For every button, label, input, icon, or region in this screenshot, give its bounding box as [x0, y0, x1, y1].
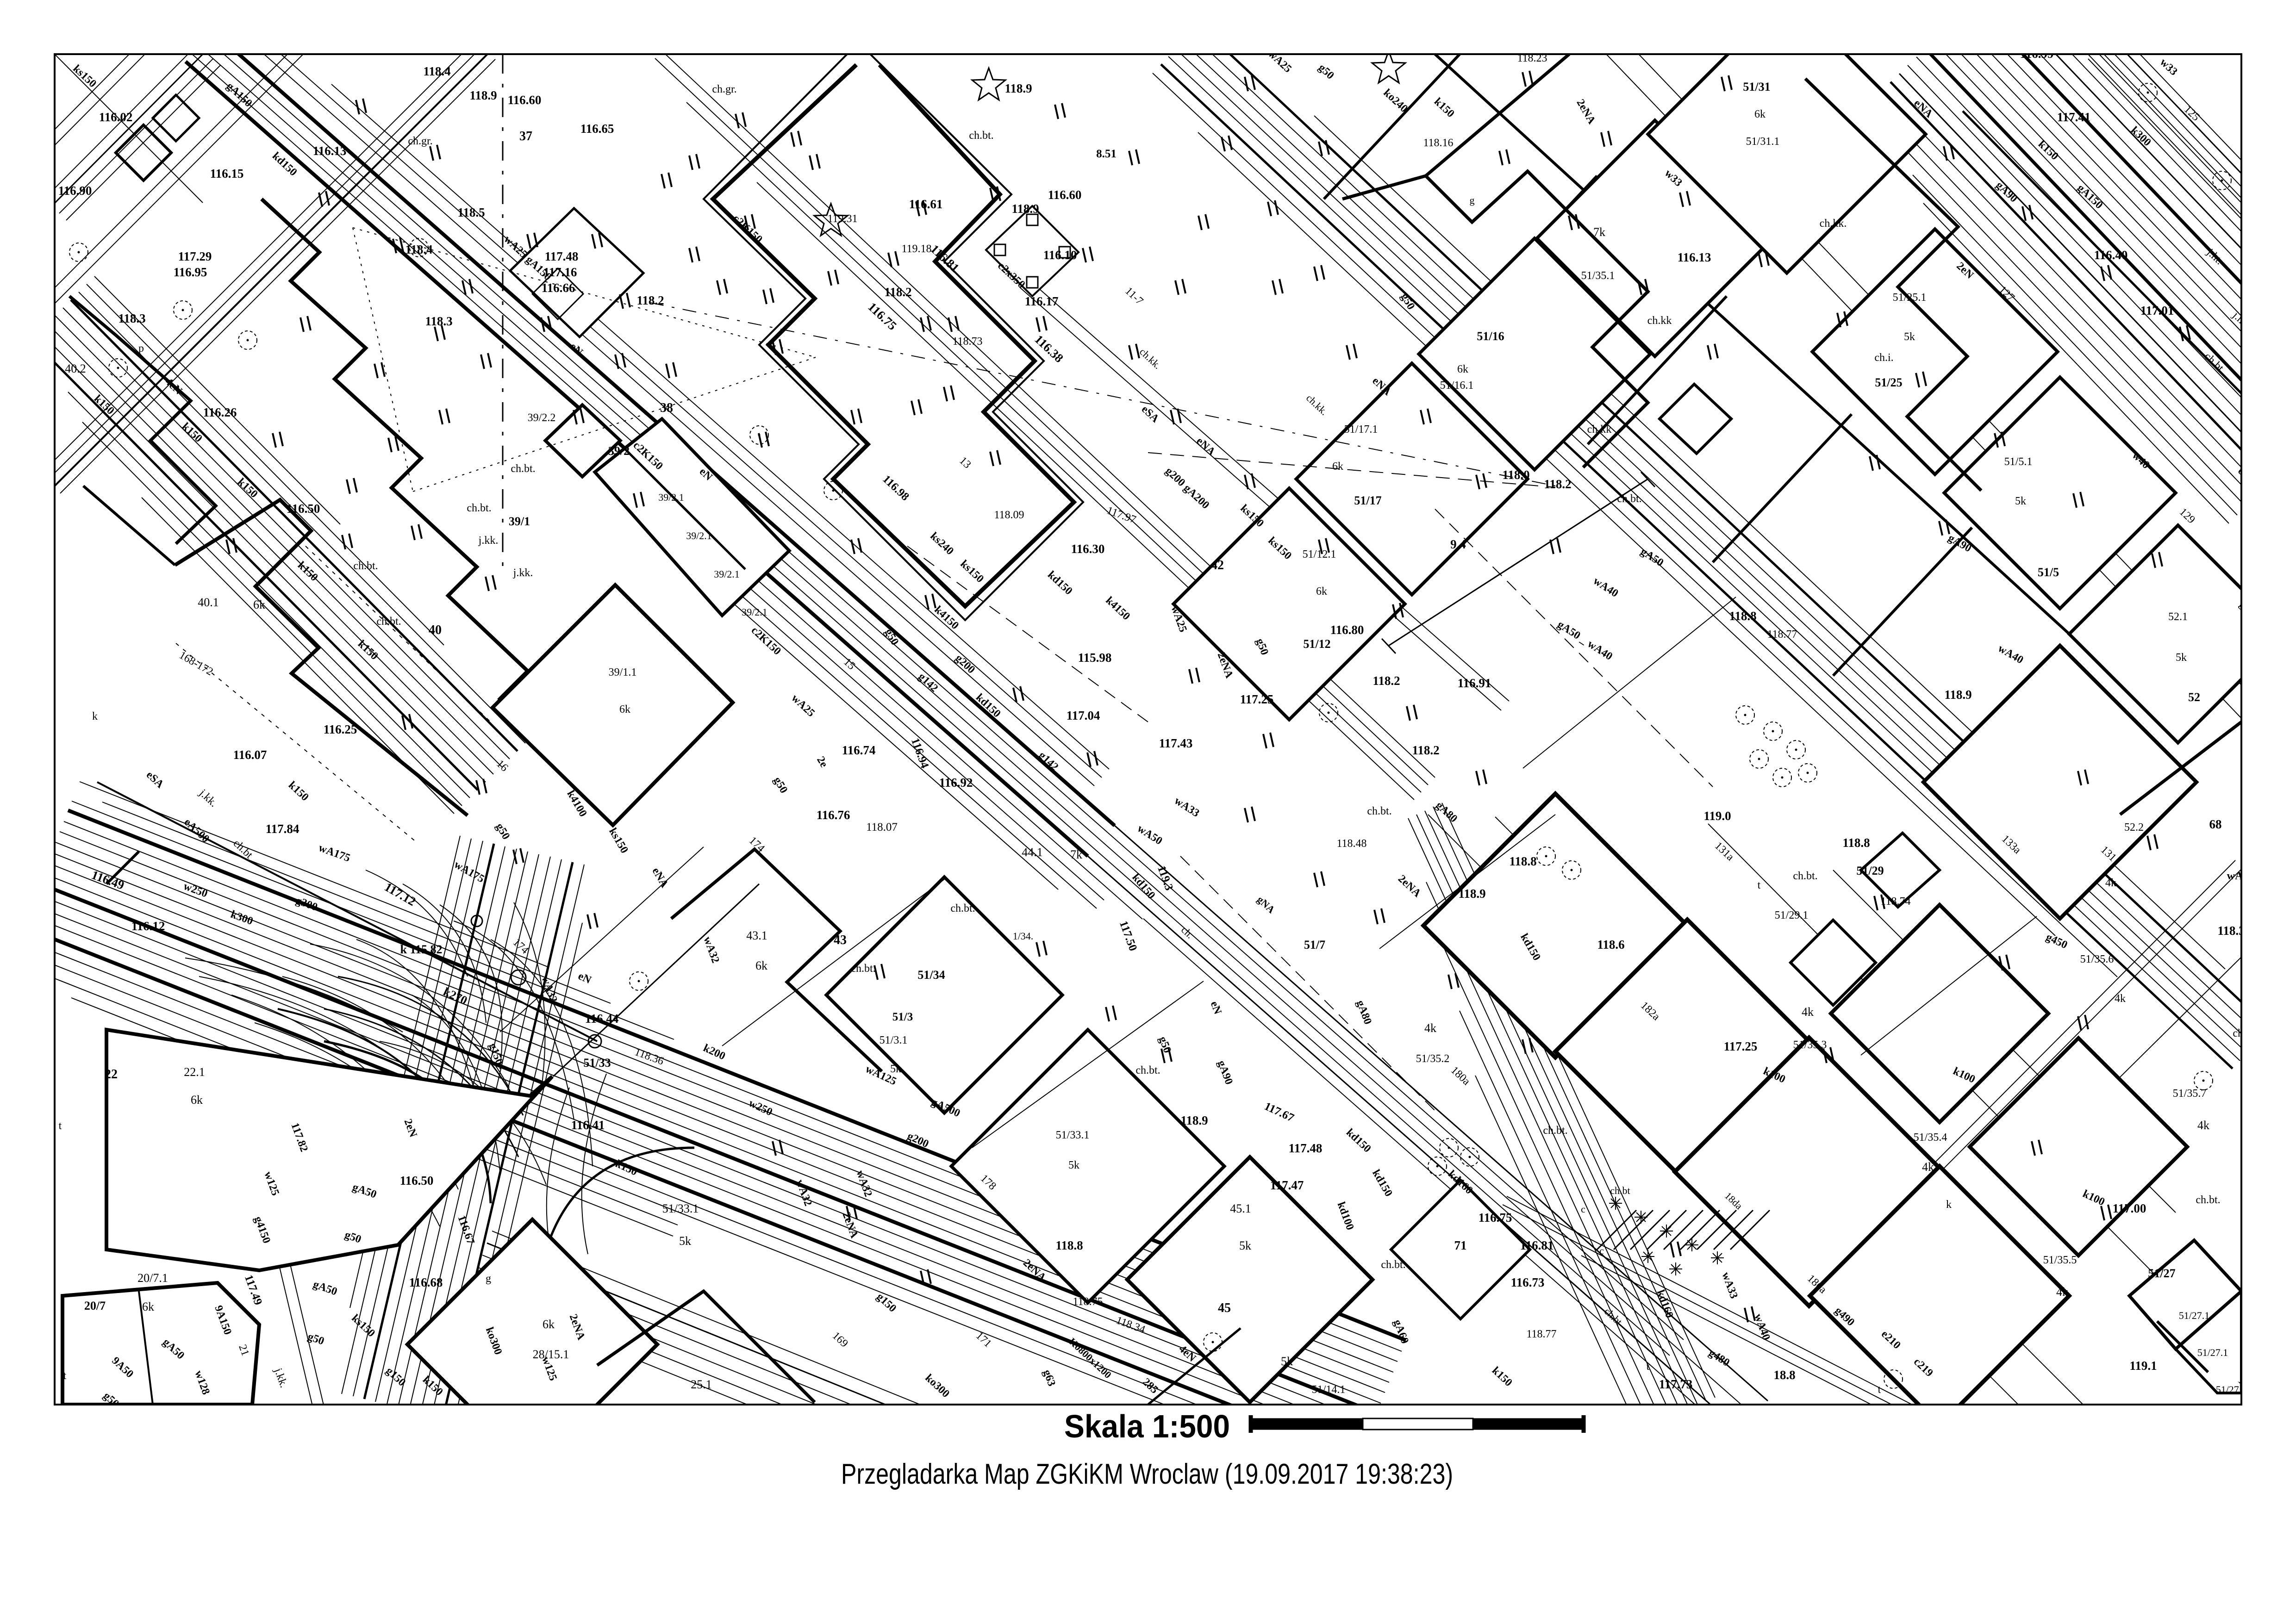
svg-text:9.4: 9.4: [1450, 537, 1466, 551]
svg-text:4k: 4k: [2056, 1285, 2068, 1299]
svg-text:39/1: 39/1: [509, 515, 530, 528]
svg-text:117.25: 117.25: [1724, 1039, 1758, 1053]
svg-text:116.02: 116.02: [99, 110, 133, 124]
svg-text:51/31: 51/31: [1743, 80, 1770, 93]
svg-text:116.44: 116.44: [585, 1012, 619, 1026]
svg-text:51/12: 51/12: [1303, 637, 1330, 651]
svg-text:5k: 5k: [2015, 495, 2026, 507]
svg-text:117.48: 117.48: [1289, 1141, 1323, 1155]
svg-text:6k: 6k: [1457, 363, 1468, 375]
svg-text:ch.bt.: ch.bt.: [969, 130, 993, 142]
svg-text:118.0: 118.0: [1502, 468, 1529, 482]
svg-text:45: 45: [1218, 1301, 1231, 1315]
svg-text:116.12: 116.12: [131, 919, 165, 933]
svg-text:116.13: 116.13: [313, 144, 347, 158]
svg-text:45.1: 45.1: [1230, 1202, 1251, 1215]
svg-text:118.4: 118.4: [405, 243, 432, 256]
svg-text:51/16: 51/16: [1477, 330, 1504, 343]
svg-text:117.01: 117.01: [2140, 304, 2174, 317]
svg-text:117.47: 117.47: [1270, 1178, 1304, 1192]
svg-text:116.75: 116.75: [1479, 1211, 1512, 1225]
svg-text:g: g: [486, 1273, 491, 1285]
svg-text:117.43: 117.43: [1159, 736, 1193, 750]
svg-text:51/3.1: 51/3.1: [880, 1034, 908, 1046]
svg-text:51/17.1: 51/17.1: [1344, 423, 1378, 435]
svg-text:117.29: 117.29: [178, 249, 212, 263]
svg-text:t: t: [1647, 1361, 1650, 1373]
svg-text:t: t: [63, 1370, 67, 1382]
svg-text:51/27.1: 51/27.1: [2179, 1310, 2210, 1321]
svg-text:39/2.1: 39/2.1: [658, 491, 684, 503]
svg-text:51/29.1: 51/29.1: [1775, 909, 1809, 921]
svg-text:39/2.1: 39/2.1: [686, 530, 712, 541]
svg-text:116.65: 116.65: [580, 122, 614, 136]
svg-text:116.50: 116.50: [400, 1174, 434, 1188]
svg-text:4k: 4k: [1424, 1021, 1436, 1035]
svg-text:51/16.1: 51/16.1: [1440, 379, 1474, 392]
svg-text:118.77: 118.77: [1526, 1328, 1556, 1340]
svg-text:116.07: 116.07: [233, 748, 267, 762]
svg-text:118.74: 118.74: [1880, 895, 1910, 908]
svg-text:ch.bt.: ch.bt.: [1381, 1259, 1405, 1271]
svg-text:ch.bt.: ch.bt.: [511, 463, 535, 475]
svg-text:51/17: 51/17: [1354, 494, 1381, 507]
svg-text:116.81: 116.81: [1520, 1238, 1554, 1252]
svg-text:51/35.2: 51/35.2: [1416, 1053, 1450, 1065]
svg-text:51/35.3: 51/35.3: [1793, 1039, 1827, 1051]
svg-text:118.2: 118.2: [1544, 477, 1571, 491]
svg-text:39/2.2: 39/2.2: [528, 412, 556, 424]
svg-text:44.1: 44.1: [1022, 846, 1043, 859]
svg-text:118.2: 118.2: [1373, 674, 1400, 688]
svg-text:ch.bt.: ch.bt.: [1617, 493, 1641, 505]
svg-text:5k: 5k: [1281, 1355, 1293, 1368]
svg-text:51/35.7: 51/35.7: [2173, 1088, 2207, 1100]
svg-text:5k: 5k: [1904, 331, 1915, 343]
svg-text:118.9: 118.9: [1011, 202, 1039, 216]
svg-text:c: c: [1581, 1203, 1585, 1215]
svg-text:5k: 5k: [679, 1234, 691, 1248]
svg-text:c: c: [1599, 1245, 1604, 1256]
svg-text:118.4: 118.4: [423, 64, 450, 78]
svg-text:118.48: 118.48: [1336, 838, 1366, 850]
svg-text:118.3: 118.3: [425, 314, 452, 328]
svg-text:ch.gr.: ch.gr.: [712, 83, 736, 95]
svg-text:116.80: 116.80: [1330, 623, 1364, 637]
svg-text:116.30: 116.30: [1071, 542, 1105, 556]
svg-text:51/5.1: 51/5.1: [2004, 456, 2033, 468]
svg-text:51/12.1: 51/12.1: [1303, 548, 1336, 560]
svg-text:ch.bt.: ch.bt.: [2196, 1194, 2220, 1206]
svg-text:ch.kk.: ch.kk.: [1820, 218, 1847, 230]
svg-text:ch.bt: ch.bt: [1610, 1185, 1630, 1196]
svg-text:22.1: 22.1: [184, 1065, 205, 1079]
svg-text:118.9: 118.9: [469, 88, 497, 102]
svg-text:119.1: 119.1: [2129, 1359, 2157, 1373]
svg-text:116.15: 116.15: [210, 167, 244, 180]
svg-text:116.17: 116.17: [1025, 294, 1059, 308]
svg-text:ch.kk: ch.kk: [1587, 423, 1612, 435]
svg-text:116.26: 116.26: [203, 405, 237, 419]
svg-text:51/3: 51/3: [892, 1011, 913, 1023]
svg-text:51/29: 51/29: [1856, 864, 1884, 877]
svg-text:118.9: 118.9: [1180, 1113, 1208, 1127]
svg-text:51/35.6: 51/35.6: [2080, 953, 2114, 965]
svg-text:116.60: 116.60: [508, 93, 542, 107]
svg-text:8.51: 8.51: [1096, 148, 1117, 160]
svg-text:116.92: 116.92: [939, 776, 973, 790]
svg-text:116.10: 116.10: [1043, 248, 1077, 262]
svg-text:20/7: 20/7: [84, 1299, 106, 1312]
svg-text:116.74: 116.74: [842, 743, 876, 757]
svg-text:116.66: 116.66: [542, 281, 575, 295]
svg-text:ch.bt.: ch.bt.: [1367, 805, 1391, 817]
svg-text:118.2: 118.2: [1412, 743, 1439, 757]
svg-text:38: 38: [660, 401, 673, 415]
svg-text:117.25: 117.25: [1240, 692, 1274, 706]
svg-text:4k: 4k: [1922, 1160, 1934, 1174]
svg-text:ch.bt.: ch.bt.: [1136, 1064, 1160, 1076]
svg-text:119.0: 119.0: [1703, 809, 1731, 823]
svg-text:118.8: 118.8: [1055, 1238, 1083, 1252]
svg-text:39/1.1: 39/1.1: [609, 666, 637, 678]
svg-text:116.91: 116.91: [1458, 676, 1491, 690]
svg-text:118.07: 118.07: [866, 821, 898, 833]
svg-text:51/31.1: 51/31.1: [1746, 136, 1780, 148]
svg-text:51/33: 51/33: [583, 1056, 611, 1070]
svg-text:116.40: 116.40: [2094, 248, 2128, 262]
svg-text:j.kk.: j.kk.: [513, 567, 533, 579]
svg-text:39/2: 39/2: [608, 444, 630, 458]
svg-text:51/27.1: 51/27.1: [2197, 1347, 2228, 1358]
svg-text:j.kk.: j.kk.: [478, 535, 499, 547]
svg-text:6k: 6k: [253, 598, 265, 611]
svg-text:43: 43: [834, 933, 847, 947]
svg-text:116.50: 116.50: [287, 502, 320, 516]
svg-text:43.1: 43.1: [746, 929, 767, 942]
svg-text:ch.bt.: ch.bt.: [950, 902, 975, 914]
svg-text:5k: 5k: [1239, 1239, 1251, 1252]
svg-text:k 115.82: k 115.82: [400, 943, 442, 956]
svg-text:51/25.1: 51/25.1: [1893, 292, 1927, 304]
svg-text:39/2.1: 39/2.1: [714, 568, 740, 580]
svg-text:118.9: 118.9: [1004, 81, 1032, 95]
svg-text:119.31: 119.31: [827, 213, 857, 225]
svg-text:ch.bt.: ch.bt.: [851, 963, 875, 975]
svg-text:42: 42: [1211, 558, 1224, 572]
svg-text:118.09: 118.09: [994, 509, 1024, 521]
svg-text:5k: 5k: [1068, 1159, 1079, 1171]
svg-text:6k: 6k: [191, 1093, 203, 1107]
svg-text:5k: 5k: [2176, 652, 2187, 664]
svg-text:68: 68: [2209, 817, 2222, 831]
svg-text:117.00: 117.00: [2113, 1201, 2146, 1215]
svg-text:6k: 6k: [142, 1300, 154, 1313]
svg-text:118.8: 118.8: [1509, 854, 1536, 868]
svg-text:4k: 4k: [2197, 1119, 2209, 1132]
svg-text:118.9: 118.9: [1458, 887, 1485, 901]
svg-text:ch.bt.: ch.bt.: [1793, 870, 1817, 882]
svg-text:116.73: 116.73: [1511, 1275, 1545, 1289]
svg-text:119.18: 119.18: [901, 243, 931, 255]
svg-text:ch.i.: ch.i.: [1874, 352, 1893, 364]
svg-text:51/25: 51/25: [1875, 376, 1902, 389]
svg-text:7k: 7k: [1593, 225, 1605, 239]
svg-text:t: t: [1758, 879, 1761, 891]
svg-text:51/33.1: 51/33.1: [662, 1202, 699, 1215]
svg-text:51/5: 51/5: [2038, 566, 2059, 579]
svg-text:118.9: 118.9: [1944, 688, 1972, 702]
svg-text:ch.bt.: ch.bt.: [353, 560, 378, 572]
svg-text:6k: 6k: [755, 959, 767, 972]
svg-text:52.2: 52.2: [2124, 821, 2144, 833]
svg-text:71: 71: [1454, 1238, 1467, 1252]
svg-text:28/15.1: 28/15.1: [533, 1348, 569, 1361]
svg-text:51/35.1: 51/35.1: [1581, 270, 1615, 282]
svg-text:51/35.4: 51/35.4: [1914, 1132, 1947, 1144]
svg-text:Przegladarka Map ZGKiKM Wrocla: Przegladarka Map ZGKiKM Wroclaw (19.09.2…: [841, 1458, 1453, 1490]
svg-text:6k: 6k: [1316, 585, 1327, 597]
svg-text:25.1: 25.1: [691, 1378, 712, 1391]
svg-text:118.16: 118.16: [1423, 137, 1453, 149]
svg-text:116.95: 116.95: [174, 265, 207, 279]
svg-text:22: 22: [105, 1067, 118, 1082]
svg-text:52.1: 52.1: [2168, 611, 2188, 623]
svg-text:ch.bt.: ch.bt.: [1543, 1125, 1567, 1137]
svg-text:t: t: [1878, 1384, 1881, 1396]
svg-text:4k: 4k: [2115, 993, 2126, 1005]
svg-text:k: k: [92, 710, 98, 722]
svg-text:116.68: 116.68: [409, 1275, 443, 1289]
svg-text:4k: 4k: [1802, 1005, 1814, 1019]
svg-text:k: k: [1946, 1199, 1952, 1211]
svg-text:ch.gr.: ch.gr.: [408, 135, 432, 147]
svg-text:118.3: 118.3: [118, 311, 145, 325]
svg-text:116.25: 116.25: [324, 722, 357, 736]
svg-text:5k: 5k: [890, 1063, 901, 1075]
svg-text:g: g: [1470, 194, 1475, 206]
svg-text:116.76: 116.76: [817, 808, 850, 822]
svg-text:Skala 1:500: Skala 1:500: [1064, 1408, 1230, 1444]
svg-text:118.2: 118.2: [884, 285, 911, 299]
svg-text:117.48: 117.48: [545, 249, 579, 263]
svg-text:51/7: 51/7: [1304, 938, 1325, 951]
svg-text:116.61: 116.61: [909, 197, 943, 211]
svg-text:1/34.: 1/34.: [1013, 930, 1034, 942]
svg-text:t: t: [59, 1120, 62, 1132]
svg-text:6k: 6k: [1332, 460, 1343, 473]
svg-text:7k: 7k: [1070, 848, 1082, 861]
svg-text:ch.kk: ch.kk: [1647, 315, 1672, 327]
svg-text:40: 40: [429, 623, 442, 637]
svg-text:40.1: 40.1: [198, 596, 219, 609]
svg-text:117.41: 117.41: [2057, 110, 2091, 124]
svg-text:116.13: 116.13: [1678, 250, 1711, 264]
svg-text:118.77: 118.77: [1767, 628, 1797, 640]
svg-text:51/27: 51/27: [2148, 1267, 2175, 1280]
svg-text:39/2.1: 39/2.1: [742, 606, 767, 618]
svg-text:51/33.1: 51/33.1: [1056, 1129, 1090, 1141]
svg-text:118.8: 118.8: [1729, 609, 1756, 623]
svg-text:51/34: 51/34: [917, 968, 945, 982]
svg-text:51/14.1: 51/14.1: [1312, 1384, 1346, 1396]
svg-text:116.41: 116.41: [571, 1118, 605, 1132]
svg-text:116.90: 116.90: [58, 184, 92, 198]
svg-text:52: 52: [2188, 690, 2200, 704]
svg-text:ch.bt.: ch.bt.: [376, 616, 401, 628]
svg-text:118.2: 118.2: [636, 293, 664, 307]
svg-text:6k: 6k: [619, 703, 630, 715]
svg-text:4k: 4k: [2105, 877, 2116, 889]
svg-text:118.6: 118.6: [1597, 938, 1624, 951]
svg-text:6k: 6k: [1754, 108, 1766, 120]
svg-text:118.73: 118.73: [952, 336, 982, 348]
svg-text:20/7.1: 20/7.1: [137, 1271, 168, 1285]
svg-text:6k: 6k: [543, 1318, 555, 1331]
svg-text:118.8: 118.8: [1842, 836, 1870, 850]
svg-text:p: p: [138, 342, 144, 354]
svg-text:117.84: 117.84: [266, 822, 299, 836]
svg-text:18.8: 18.8: [1773, 1368, 1795, 1382]
svg-text:ch.bt.: ch.bt.: [467, 502, 491, 514]
svg-text:117.73: 117.73: [1659, 1377, 1693, 1391]
svg-text:40.2: 40.2: [65, 362, 86, 375]
svg-text:117.04: 117.04: [1067, 709, 1100, 722]
svg-text:115.98: 115.98: [1078, 651, 1112, 665]
svg-text:118.75: 118.75: [1073, 1296, 1103, 1308]
svg-text:51/35.5: 51/35.5: [2043, 1254, 2077, 1266]
svg-text:116.60: 116.60: [1048, 188, 1082, 202]
svg-text:118.5: 118.5: [457, 205, 485, 219]
svg-text:37: 37: [519, 129, 532, 143]
